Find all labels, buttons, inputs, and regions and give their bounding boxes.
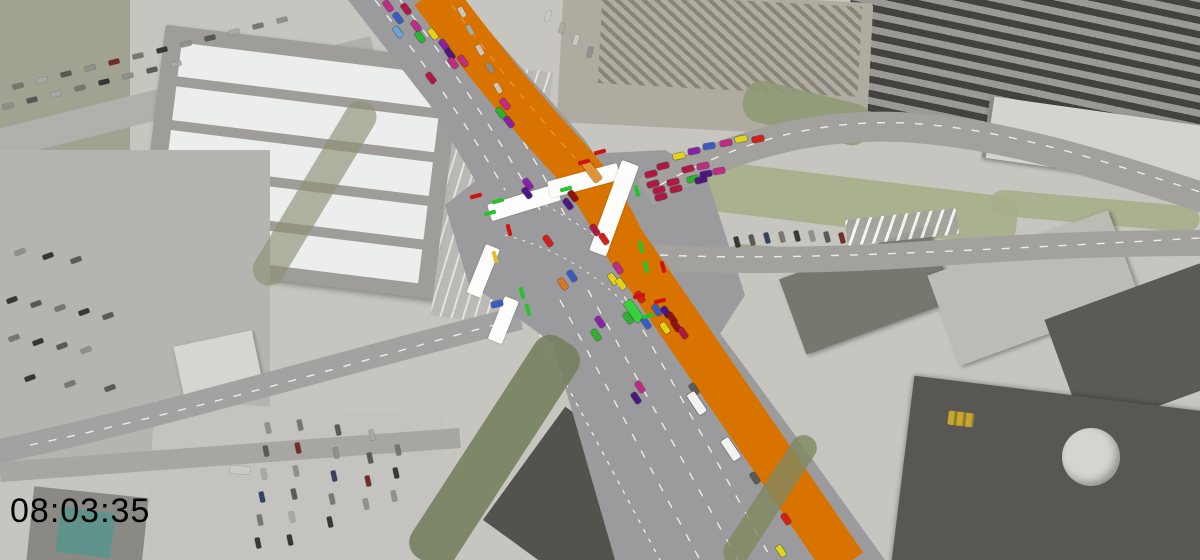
- signal-green: [492, 198, 505, 205]
- signal-green: [525, 304, 532, 317]
- signal-red: [594, 149, 607, 156]
- signal-green: [642, 313, 655, 320]
- signal-red: [506, 224, 513, 237]
- signal-heads-layer: [0, 0, 1200, 560]
- signal-red: [578, 159, 591, 166]
- signal-red: [654, 298, 667, 305]
- signal-green: [638, 241, 645, 254]
- signal-green: [519, 287, 526, 300]
- signal-green: [634, 185, 641, 198]
- signal-amber: [492, 251, 499, 264]
- signal-green: [643, 261, 650, 274]
- signal-red: [470, 193, 483, 200]
- signal-green: [484, 210, 497, 217]
- traffic-simulation-aerial-view: 08:03:35: [0, 0, 1200, 560]
- signal-red: [660, 261, 667, 274]
- signal-red: [633, 293, 646, 300]
- signal-green: [560, 186, 573, 193]
- simulation-clock: 08:03:35: [10, 492, 150, 531]
